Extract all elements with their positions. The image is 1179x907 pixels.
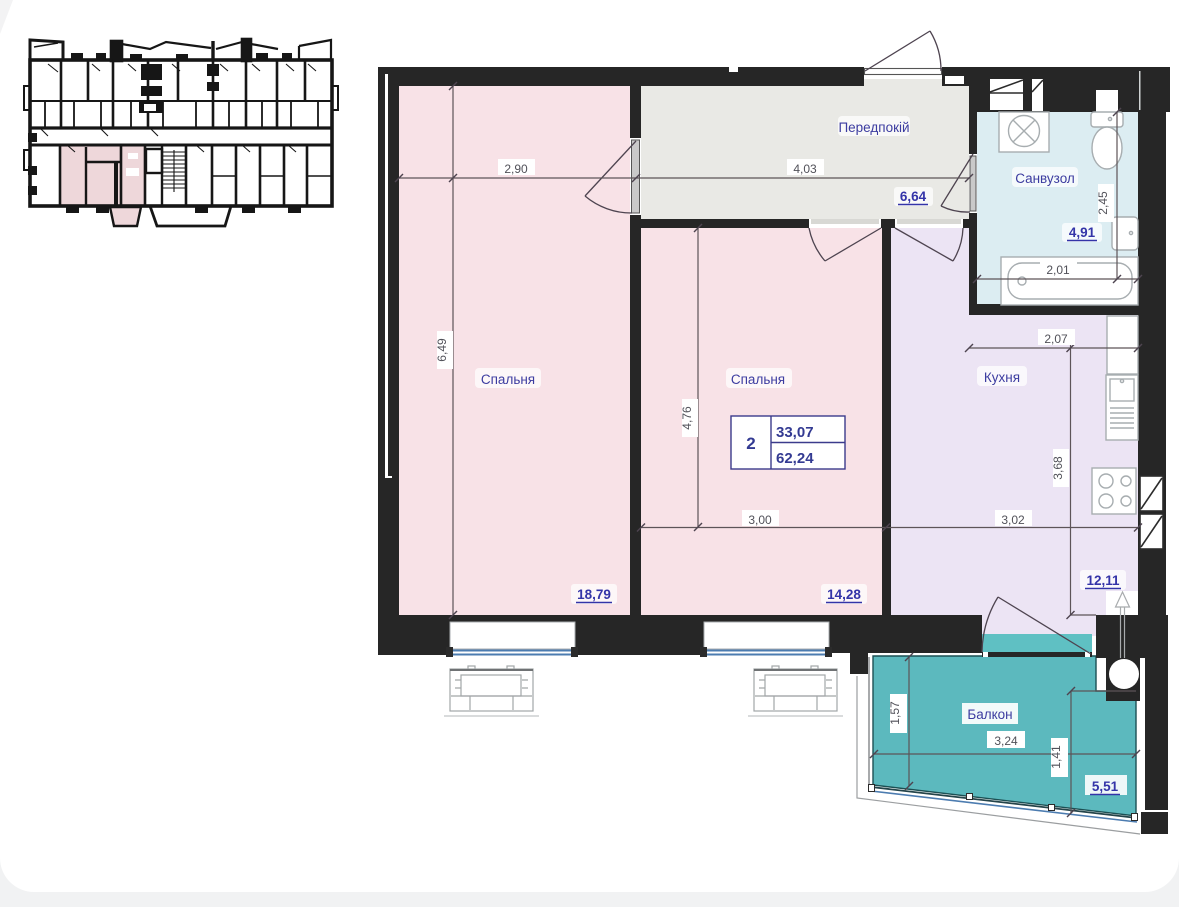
svg-text:2,01: 2,01 bbox=[1046, 263, 1070, 277]
svg-text:2,45: 2,45 bbox=[1096, 191, 1110, 215]
svg-text:2,90: 2,90 bbox=[504, 162, 528, 176]
svg-text:3,00: 3,00 bbox=[748, 513, 772, 527]
svg-text:5,51: 5,51 bbox=[1092, 779, 1119, 794]
svg-text:14,28: 14,28 bbox=[827, 587, 861, 602]
svg-text:3,02: 3,02 bbox=[1001, 513, 1025, 527]
svg-text:4,76: 4,76 bbox=[680, 406, 694, 430]
svg-text:1,41: 1,41 bbox=[1049, 745, 1063, 769]
svg-text:3,24: 3,24 bbox=[994, 734, 1018, 748]
svg-text:3,68: 3,68 bbox=[1051, 456, 1065, 480]
svg-text:Спальня: Спальня bbox=[731, 372, 785, 387]
svg-text:2,07: 2,07 bbox=[1044, 332, 1068, 346]
svg-text:Санвузол: Санвузол bbox=[1015, 171, 1075, 186]
svg-text:Спальня: Спальня bbox=[481, 372, 535, 387]
svg-text:4,03: 4,03 bbox=[793, 162, 817, 176]
svg-text:Кухня: Кухня bbox=[984, 370, 1020, 385]
svg-text:12,11: 12,11 bbox=[1086, 573, 1120, 588]
svg-text:6,49: 6,49 bbox=[435, 338, 449, 362]
svg-text:2: 2 bbox=[746, 434, 755, 453]
svg-text:33,07: 33,07 bbox=[776, 424, 814, 441]
svg-text:62,24: 62,24 bbox=[776, 450, 814, 467]
svg-text:4,91: 4,91 bbox=[1069, 225, 1096, 240]
svg-text:1,57: 1,57 bbox=[888, 701, 902, 725]
svg-text:Передпокій: Передпокій bbox=[838, 120, 909, 135]
svg-text:6,64: 6,64 bbox=[900, 189, 927, 204]
svg-text:Балкон: Балкон bbox=[967, 707, 1012, 722]
svg-text:18,79: 18,79 bbox=[577, 587, 611, 602]
